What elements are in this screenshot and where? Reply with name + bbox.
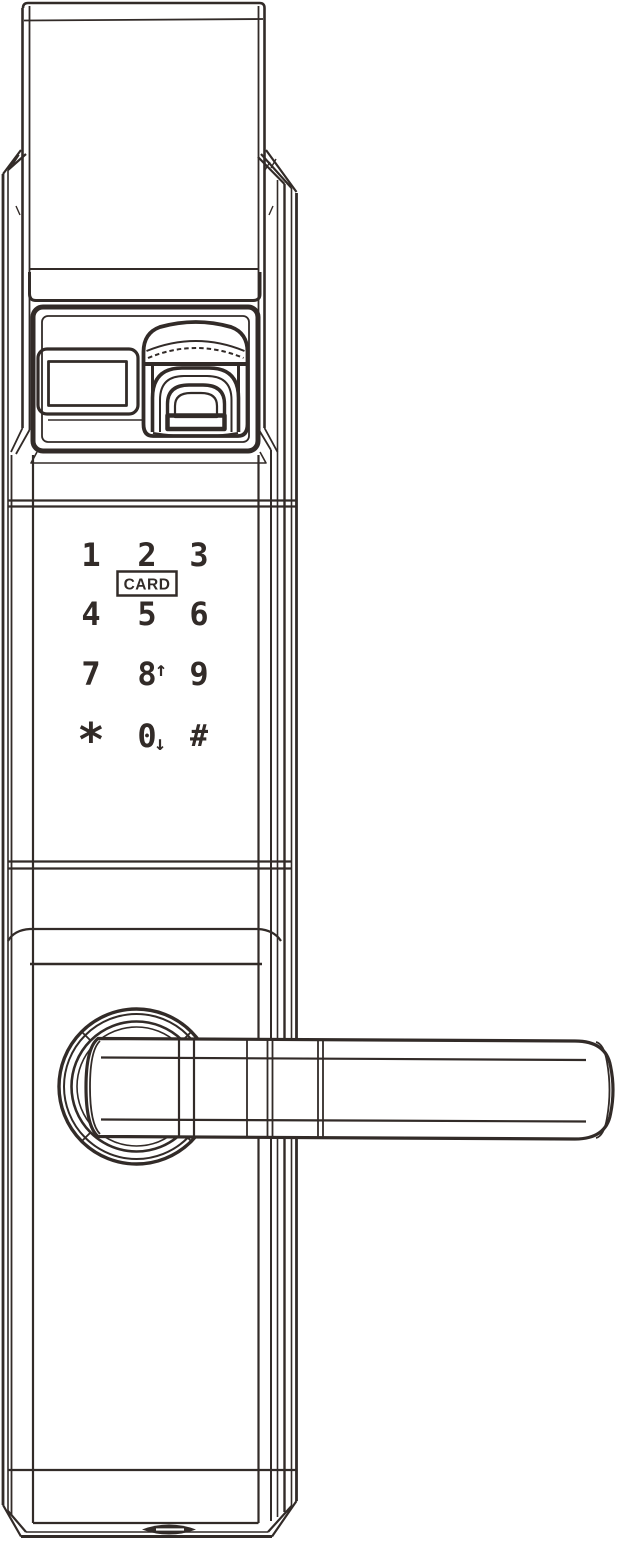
key-7[interactable]: 7 (81, 655, 100, 693)
key-6[interactable]: 6 (189, 595, 208, 633)
card-reader-zone[interactable]: CARD (118, 572, 177, 596)
key-2[interactable]: 2 (137, 536, 156, 574)
key-8[interactable]: 8 (137, 655, 156, 693)
key-1[interactable]: 1 (81, 536, 100, 574)
card-label[interactable]: CARD (124, 577, 171, 594)
fingerprint-base-bar (168, 416, 225, 430)
key-3[interactable]: 3 (189, 536, 208, 574)
display-inner (49, 362, 127, 406)
down-arrow-icon: ↓ (154, 731, 166, 755)
touch-keypad: 1 2 3 4 5 6 7 8 9 * 0 # ↑ ↓ CARD (77, 536, 208, 767)
sensor-panel (31, 307, 266, 463)
door-lock-technical-drawing: 1 2 3 4 5 6 7 8 9 * 0 # ↑ ↓ CARD (0, 0, 617, 1541)
lock-front-view: 1 2 3 4 5 6 7 8 9 * 0 # ↑ ↓ CARD (0, 0, 617, 1541)
key-star[interactable]: * (77, 713, 105, 767)
key-5[interactable]: 5 (137, 595, 156, 633)
seam-curved (8, 929, 281, 941)
top-cap-band-line (24, 19, 263, 21)
seam-below-keypad (8, 862, 292, 869)
display-window (38, 349, 143, 420)
lever-outline[interactable] (86, 1039, 613, 1140)
key-hash[interactable]: # (190, 719, 208, 754)
bottom-right-chamfer (268, 1501, 297, 1537)
fingerprint-scanner[interactable] (144, 322, 248, 437)
door-handle-lever[interactable] (86, 1039, 613, 1140)
key-9[interactable]: 9 (189, 655, 208, 693)
seam-above-keypad (8, 501, 296, 507)
bottom-port (142, 1525, 196, 1535)
up-arrow-icon: ↑ (155, 657, 167, 681)
top-cap-bottom-band (30, 272, 261, 301)
body-seams (8, 501, 296, 1471)
bottom-left-chamfer (3, 1505, 26, 1537)
key-4[interactable]: 4 (81, 595, 100, 633)
fingerprint-brow-dashed-arc (148, 348, 244, 358)
